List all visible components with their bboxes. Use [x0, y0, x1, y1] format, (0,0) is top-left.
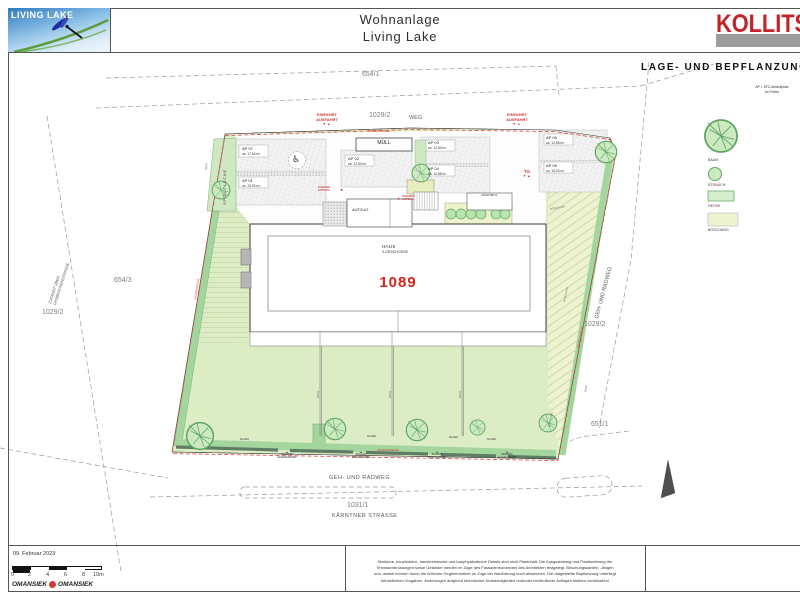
- legend-label-boeschung: BÖSCHUNG: [708, 228, 729, 232]
- logo-divider: [110, 8, 111, 52]
- firm-logo-1: OMANSIEK: [12, 581, 47, 588]
- street-name: KÄRNTNER STRASSE: [332, 513, 397, 519]
- ap01-area: ca. 13,00 m²: [242, 185, 260, 189]
- mauer-1: MAUER: [240, 439, 249, 442]
- titleblock-v2: [645, 545, 646, 592]
- parcel-654-3: 654/3: [114, 277, 132, 285]
- legend-label-strauch: STRAUCH: [708, 183, 725, 187]
- ap02-name: AP 02: [348, 157, 359, 162]
- ap04-area: ca. 13,88 m²: [428, 173, 446, 177]
- aufzug-label: AUFZUG: [352, 208, 368, 213]
- zugang-eigengarten-3: ▲ ZUGANG EIGENGARTEN: [417, 451, 457, 460]
- ap05-name: AP 05: [546, 136, 557, 141]
- disclaimer-line3: und -winkel können durch die örtlichen G…: [350, 571, 640, 577]
- zaun-fence-2: ZAUN: [390, 391, 393, 398]
- scale-tick-10m: 10m: [93, 572, 104, 578]
- zugang-eigengarten-2: ▲ ZUGANG EIGENGARTEN: [341, 451, 381, 460]
- logo-text: LIVING LAKE: [11, 10, 74, 20]
- disclaimer-text: Statische, konstruktive, haustechnische …: [350, 559, 640, 584]
- paketbox-label: PAKETBOX: [467, 194, 512, 197]
- company-logo: LIVING LAKE: [8, 8, 110, 52]
- project-title-line2: Living Lake: [320, 30, 480, 45]
- building-number: 1089: [368, 274, 428, 291]
- grundgrenze-top: GRUNDGRENZE: [368, 130, 390, 133]
- einfahrt-label-2: EINFAHRT AUSFAHRT ▼▲: [495, 113, 539, 126]
- zaun-fence-3: ZAUN: [460, 391, 463, 398]
- mauer-3: MAUER: [449, 437, 458, 440]
- plan-sheet: { "colors": { "accent_red": "#c62127", "…: [0, 0, 800, 600]
- header-divider: [8, 52, 800, 53]
- ap06-area: ca. 15,20 m²: [546, 170, 564, 174]
- scale-tick-0: 0: [11, 572, 14, 578]
- ap02-area: ca. 12,50 m²: [348, 163, 366, 167]
- project-title-line1: Wohnanlage: [320, 13, 480, 28]
- grundgrenze-bottom: GRUNDGRENZE: [377, 449, 399, 452]
- sheet-frame: [8, 8, 800, 592]
- tg-arrows-icon: ▼▲: [518, 174, 536, 178]
- ap05-area: ca. 13,88 m²: [546, 142, 564, 146]
- disclaimer-line4: behördlichen Vorgaben. Änderungen aufgru…: [350, 578, 640, 584]
- parcel-1031-1: 1031/1: [347, 502, 368, 510]
- haus-label: HAUS: [382, 244, 396, 249]
- brand-logo-bar: [716, 34, 800, 47]
- scale-tick-4: 4: [46, 572, 49, 578]
- haus-floors: 3-GESCHOSSE: [382, 250, 408, 254]
- firm-dot-icon: [49, 581, 56, 588]
- einfahrt-2-arrows-icon: ▼▲: [495, 122, 539, 126]
- parcel-1029-2-left: 1029/2: [42, 309, 63, 317]
- titleblock-divider: [8, 545, 800, 546]
- plan-date: 09. Februar 2023: [13, 551, 55, 557]
- ap01-name: AP 01: [242, 179, 253, 184]
- firm-logo-2: OMANSIEK: [58, 581, 93, 588]
- zugang-aufzug-1-arrow-icon: ►: [340, 188, 344, 193]
- zaun-left: ZAUN: [206, 163, 209, 170]
- scale-tick-2: 2: [28, 572, 31, 578]
- zugang-eigengarten-1: ▲ ZUGANG EIGENGARTEN: [267, 451, 307, 460]
- einfahrt-1-arrows-icon: ▼▲: [305, 122, 349, 126]
- parcel-651-1: 651/1: [591, 421, 609, 429]
- firm-logos: OMANSIEK OMANSIEK: [12, 579, 93, 589]
- zaun-fence-1: ZAUN: [318, 391, 321, 398]
- ap07-area: ca. 17,50 m²: [242, 153, 260, 157]
- legend-label-hecke: HECKE: [708, 204, 720, 208]
- zugang-aufzug-1: ZUGANG AUFZUG: [318, 186, 330, 192]
- muell-label: MÜLL: [356, 141, 412, 147]
- wheelchair-icon: ♿: [292, 154, 300, 164]
- weg-label: WEG: [409, 115, 422, 121]
- ap04-name: AP 04: [428, 167, 439, 172]
- plan-title: LAGE- UND BEPFLANZUNGSPLAN: [641, 62, 800, 74]
- tg-label: TG ▼▲: [518, 169, 536, 178]
- parcel-1029-2-top: 1029/2: [369, 112, 390, 120]
- mauer-2: MAUER: [367, 436, 376, 439]
- titleblock-v1: [345, 545, 346, 592]
- ap03-area: ca. 12,83 m²: [428, 147, 446, 151]
- zugang-eigengarten-4: ▲ ZUGANG EIGENGARTEN: [487, 451, 527, 460]
- legend-label-baum: BAUM: [708, 158, 718, 162]
- ap07-name: AP 07: [242, 147, 253, 152]
- scale-tick-8: 8: [82, 572, 85, 578]
- parcel-1029-2-right: 1029/2: [584, 321, 605, 329]
- parcel-654-1: 654/1: [362, 71, 380, 79]
- zugang-aufzug-2-arrow-icon: ◄: [396, 197, 400, 202]
- einfahrt-label-1: EINFAHRT AUSFAHRT ▼▲: [305, 113, 349, 126]
- ap-note-line2: im Freien: [746, 91, 798, 95]
- ap03-name: AP 03: [428, 141, 439, 146]
- scale-tick-6: 6: [64, 572, 67, 578]
- ap06-name: AP 06: [546, 164, 557, 169]
- zugang-aufzug-2: ZUGANG AUFZUG: [402, 195, 414, 201]
- mauer-4: MAUER: [487, 439, 496, 442]
- spielflaeche-label: SPIELFLÄCHE: [223, 169, 228, 205]
- scale-bar: [12, 566, 102, 570]
- radweg-bottom: GEH- UND RADWEG: [329, 475, 390, 481]
